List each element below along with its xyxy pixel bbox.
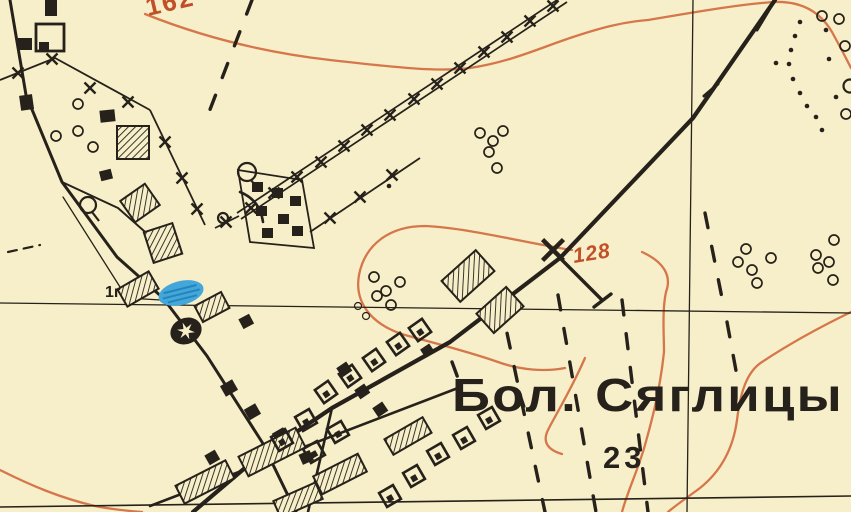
village-name-label: Бол. Сяглицы — [452, 369, 844, 421]
pond-mark-label: 1г — [105, 284, 121, 301]
household-count-label: 23 — [603, 440, 645, 475]
topo-map-canvas: 162 128 Бол. Сяглицы 23 1г — [0, 0, 851, 512]
topo-map-svg: 162 128 Бол. Сяглицы 23 1г — [0, 0, 851, 512]
